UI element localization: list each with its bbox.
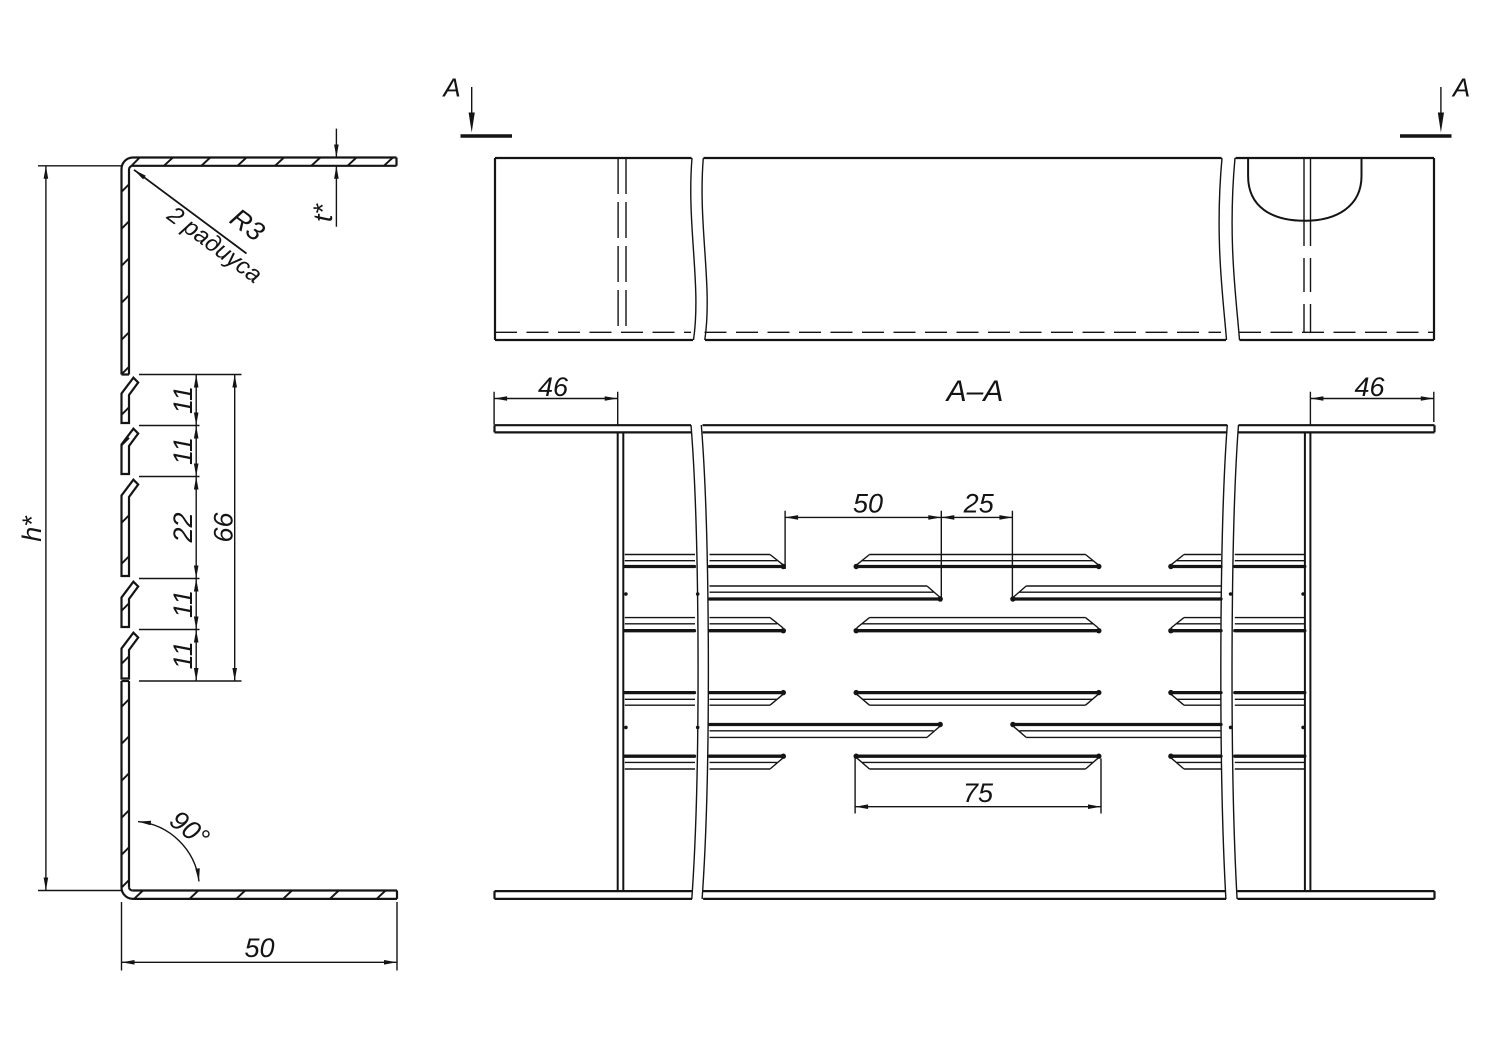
svg-text:75: 75 xyxy=(963,778,994,808)
svg-text:11: 11 xyxy=(168,386,198,414)
svg-text:11: 11 xyxy=(168,437,198,465)
svg-text:50: 50 xyxy=(853,489,883,519)
svg-text:90°: 90° xyxy=(164,805,215,854)
svg-text:22: 22 xyxy=(168,512,198,543)
svg-text:50: 50 xyxy=(244,933,274,963)
svg-text:A: A xyxy=(441,73,460,103)
svg-text:46: 46 xyxy=(1354,372,1385,402)
svg-text:t*: t* xyxy=(308,203,338,223)
svg-text:25: 25 xyxy=(963,489,995,519)
svg-text:11: 11 xyxy=(168,590,198,618)
svg-text:46: 46 xyxy=(538,372,569,402)
svg-text:A: A xyxy=(1451,73,1470,103)
svg-text:11: 11 xyxy=(168,641,198,669)
svg-text:h*: h* xyxy=(17,515,47,542)
svg-text:A–A: A–A xyxy=(945,375,1004,408)
svg-text:66: 66 xyxy=(209,512,239,543)
